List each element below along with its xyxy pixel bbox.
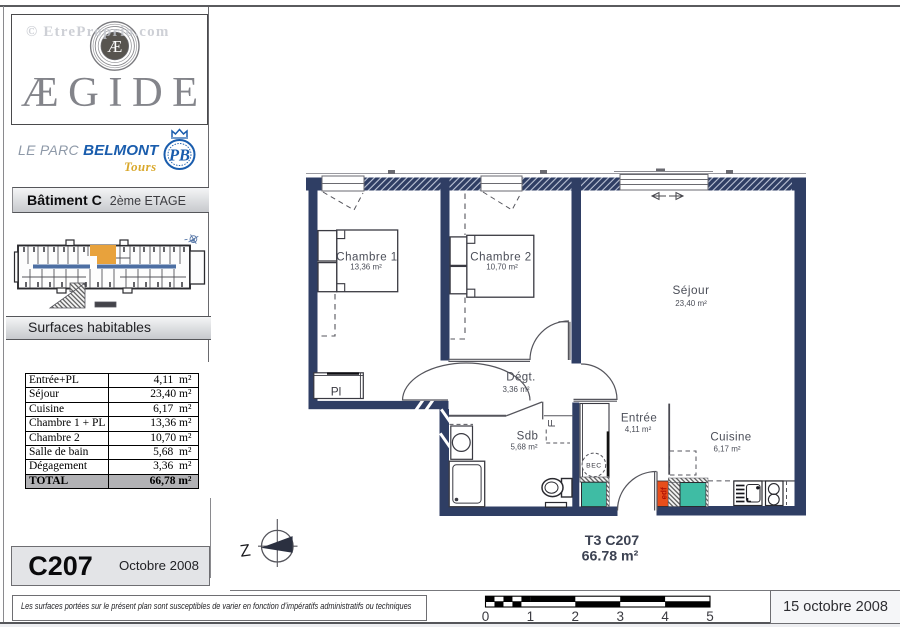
svg-text:Entrée: Entrée	[621, 413, 657, 425]
svg-text:3,36 m²: 3,36 m²	[502, 385, 529, 394]
svg-text:0: 0	[482, 609, 490, 624]
svg-text:6,17 m²: 6,17 m²	[713, 445, 740, 454]
svg-text:10,70 m²: 10,70 m²	[486, 263, 518, 272]
svg-text:Z: Z	[239, 541, 252, 561]
svg-text:T3 C207: T3 C207	[585, 533, 640, 549]
svg-text:23,40 m²: 23,40 m²	[675, 299, 707, 308]
svg-text:edf: edf	[660, 487, 669, 500]
svg-text:Sdb: Sdb	[517, 431, 539, 443]
svg-text:1: 1	[527, 609, 535, 624]
svg-text:4: 4	[661, 609, 669, 624]
svg-text:5,68 m²: 5,68 m²	[510, 443, 537, 452]
svg-text:Dégt.: Dégt.	[506, 372, 536, 384]
svg-text:Séjour: Séjour	[672, 283, 709, 297]
svg-text:5: 5	[706, 609, 714, 624]
svg-text:66.78 m²: 66.78 m²	[582, 549, 639, 565]
svg-text:3: 3	[616, 609, 624, 624]
svg-text:Pl: Pl	[331, 385, 342, 399]
svg-text:Cuisine: Cuisine	[710, 432, 751, 444]
svg-text:BEC: BEC	[586, 463, 601, 470]
svg-text:2: 2	[572, 609, 580, 624]
svg-text:13,36 m²: 13,36 m²	[350, 263, 382, 272]
svg-text:4,11 m²: 4,11 m²	[625, 425, 652, 434]
